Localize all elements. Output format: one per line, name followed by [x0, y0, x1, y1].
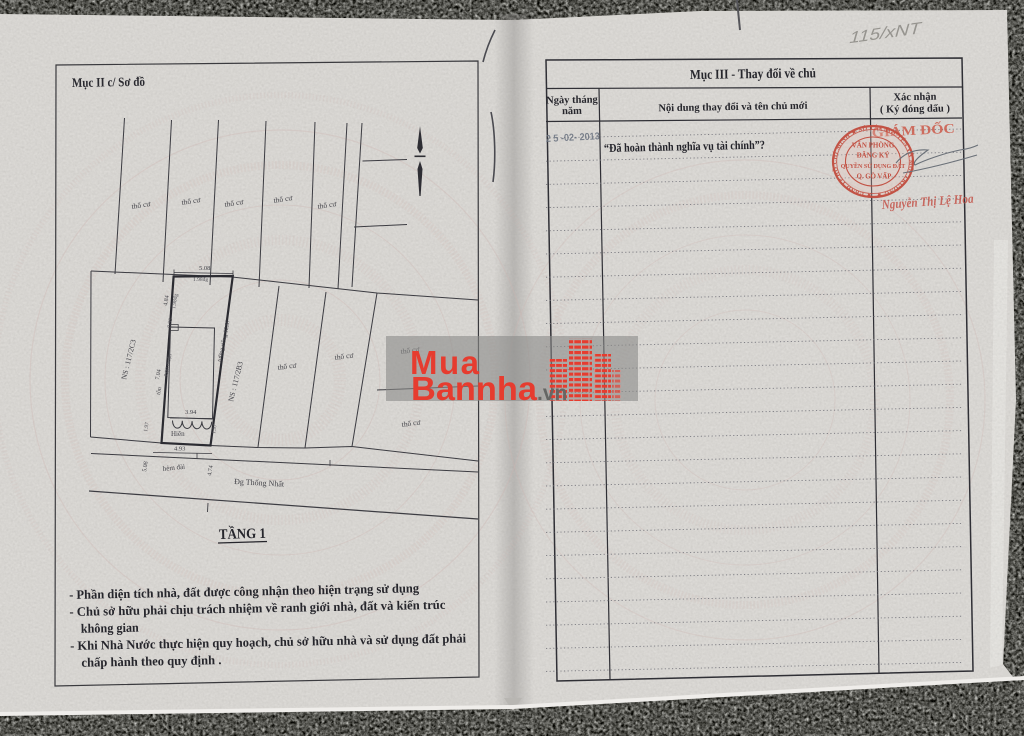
svg-text:VĂN PHÒNG: VĂN PHÒNG — [852, 142, 895, 150]
svg-text:Hiên: Hiên — [171, 430, 185, 438]
svg-text:Mục III - Thay đổi về chủ: Mục III - Thay đổi về chủ — [690, 65, 817, 82]
svg-text:5.08: 5.08 — [199, 265, 210, 272]
svg-text:năm: năm — [562, 106, 582, 117]
svg-text:Xác nhận: Xác nhận — [893, 92, 936, 104]
svg-text:Bannha: Bannha — [411, 370, 538, 407]
svg-text:Q. GÒ VẤP: Q. GÒ VẤP — [857, 173, 892, 181]
svg-text:( Ký đóng dấu ): ( Ký đóng dấu ) — [880, 103, 951, 115]
svg-text:QUYỀN SỬ DỤNG ĐẤT: QUYỀN SỬ DỤNG ĐẤT — [841, 162, 906, 170]
svg-text:TẦNG 1: TẦNG 1 — [219, 525, 266, 543]
svg-text:1.98đg: 1.98đg — [193, 277, 208, 283]
svg-text:không gian: không gian — [81, 621, 139, 636]
svg-text:4.93: 4.93 — [174, 446, 185, 453]
svg-text:.vn: .vn — [537, 382, 567, 405]
svg-text:Mục II c/ Sơ đồ: Mục II c/ Sơ đồ — [72, 74, 145, 90]
svg-text:chấp hành theo quy định .: chấp hành theo quy định . — [81, 653, 221, 670]
svg-text:3.94: 3.94 — [185, 409, 197, 416]
svg-text:ĐĂNG KÝ: ĐĂNG KÝ — [857, 152, 890, 160]
svg-text:Ngày tháng: Ngày tháng — [546, 95, 599, 107]
